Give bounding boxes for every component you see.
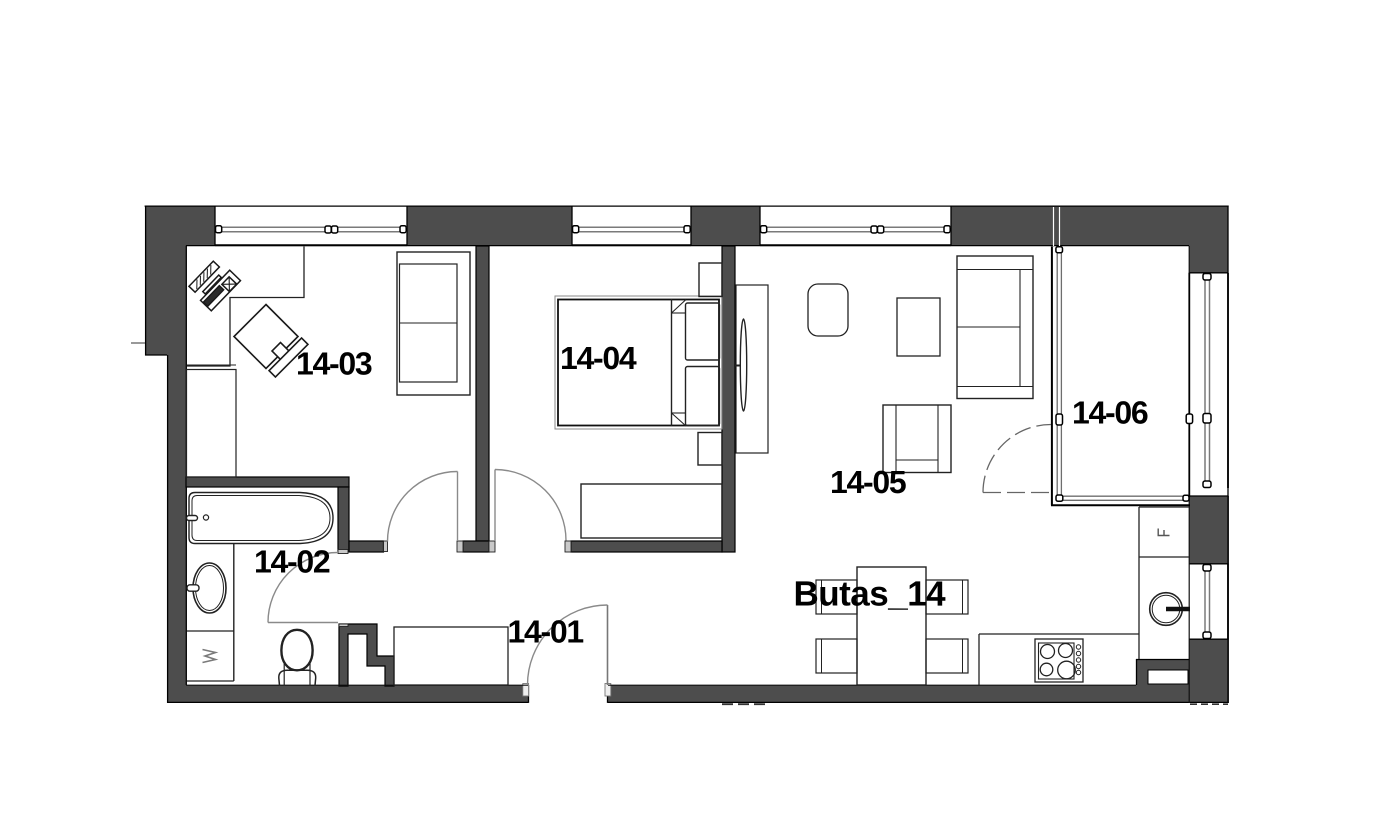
svg-text:14-01: 14-01 xyxy=(507,614,583,650)
svg-text:14-04: 14-04 xyxy=(560,340,637,376)
svg-text:14-03: 14-03 xyxy=(296,346,372,382)
svg-text:14-06: 14-06 xyxy=(1072,395,1148,431)
svg-text:14-02: 14-02 xyxy=(254,544,330,580)
svg-text:14-05: 14-05 xyxy=(830,464,906,500)
svg-text:Butas_14: Butas_14 xyxy=(793,575,946,614)
